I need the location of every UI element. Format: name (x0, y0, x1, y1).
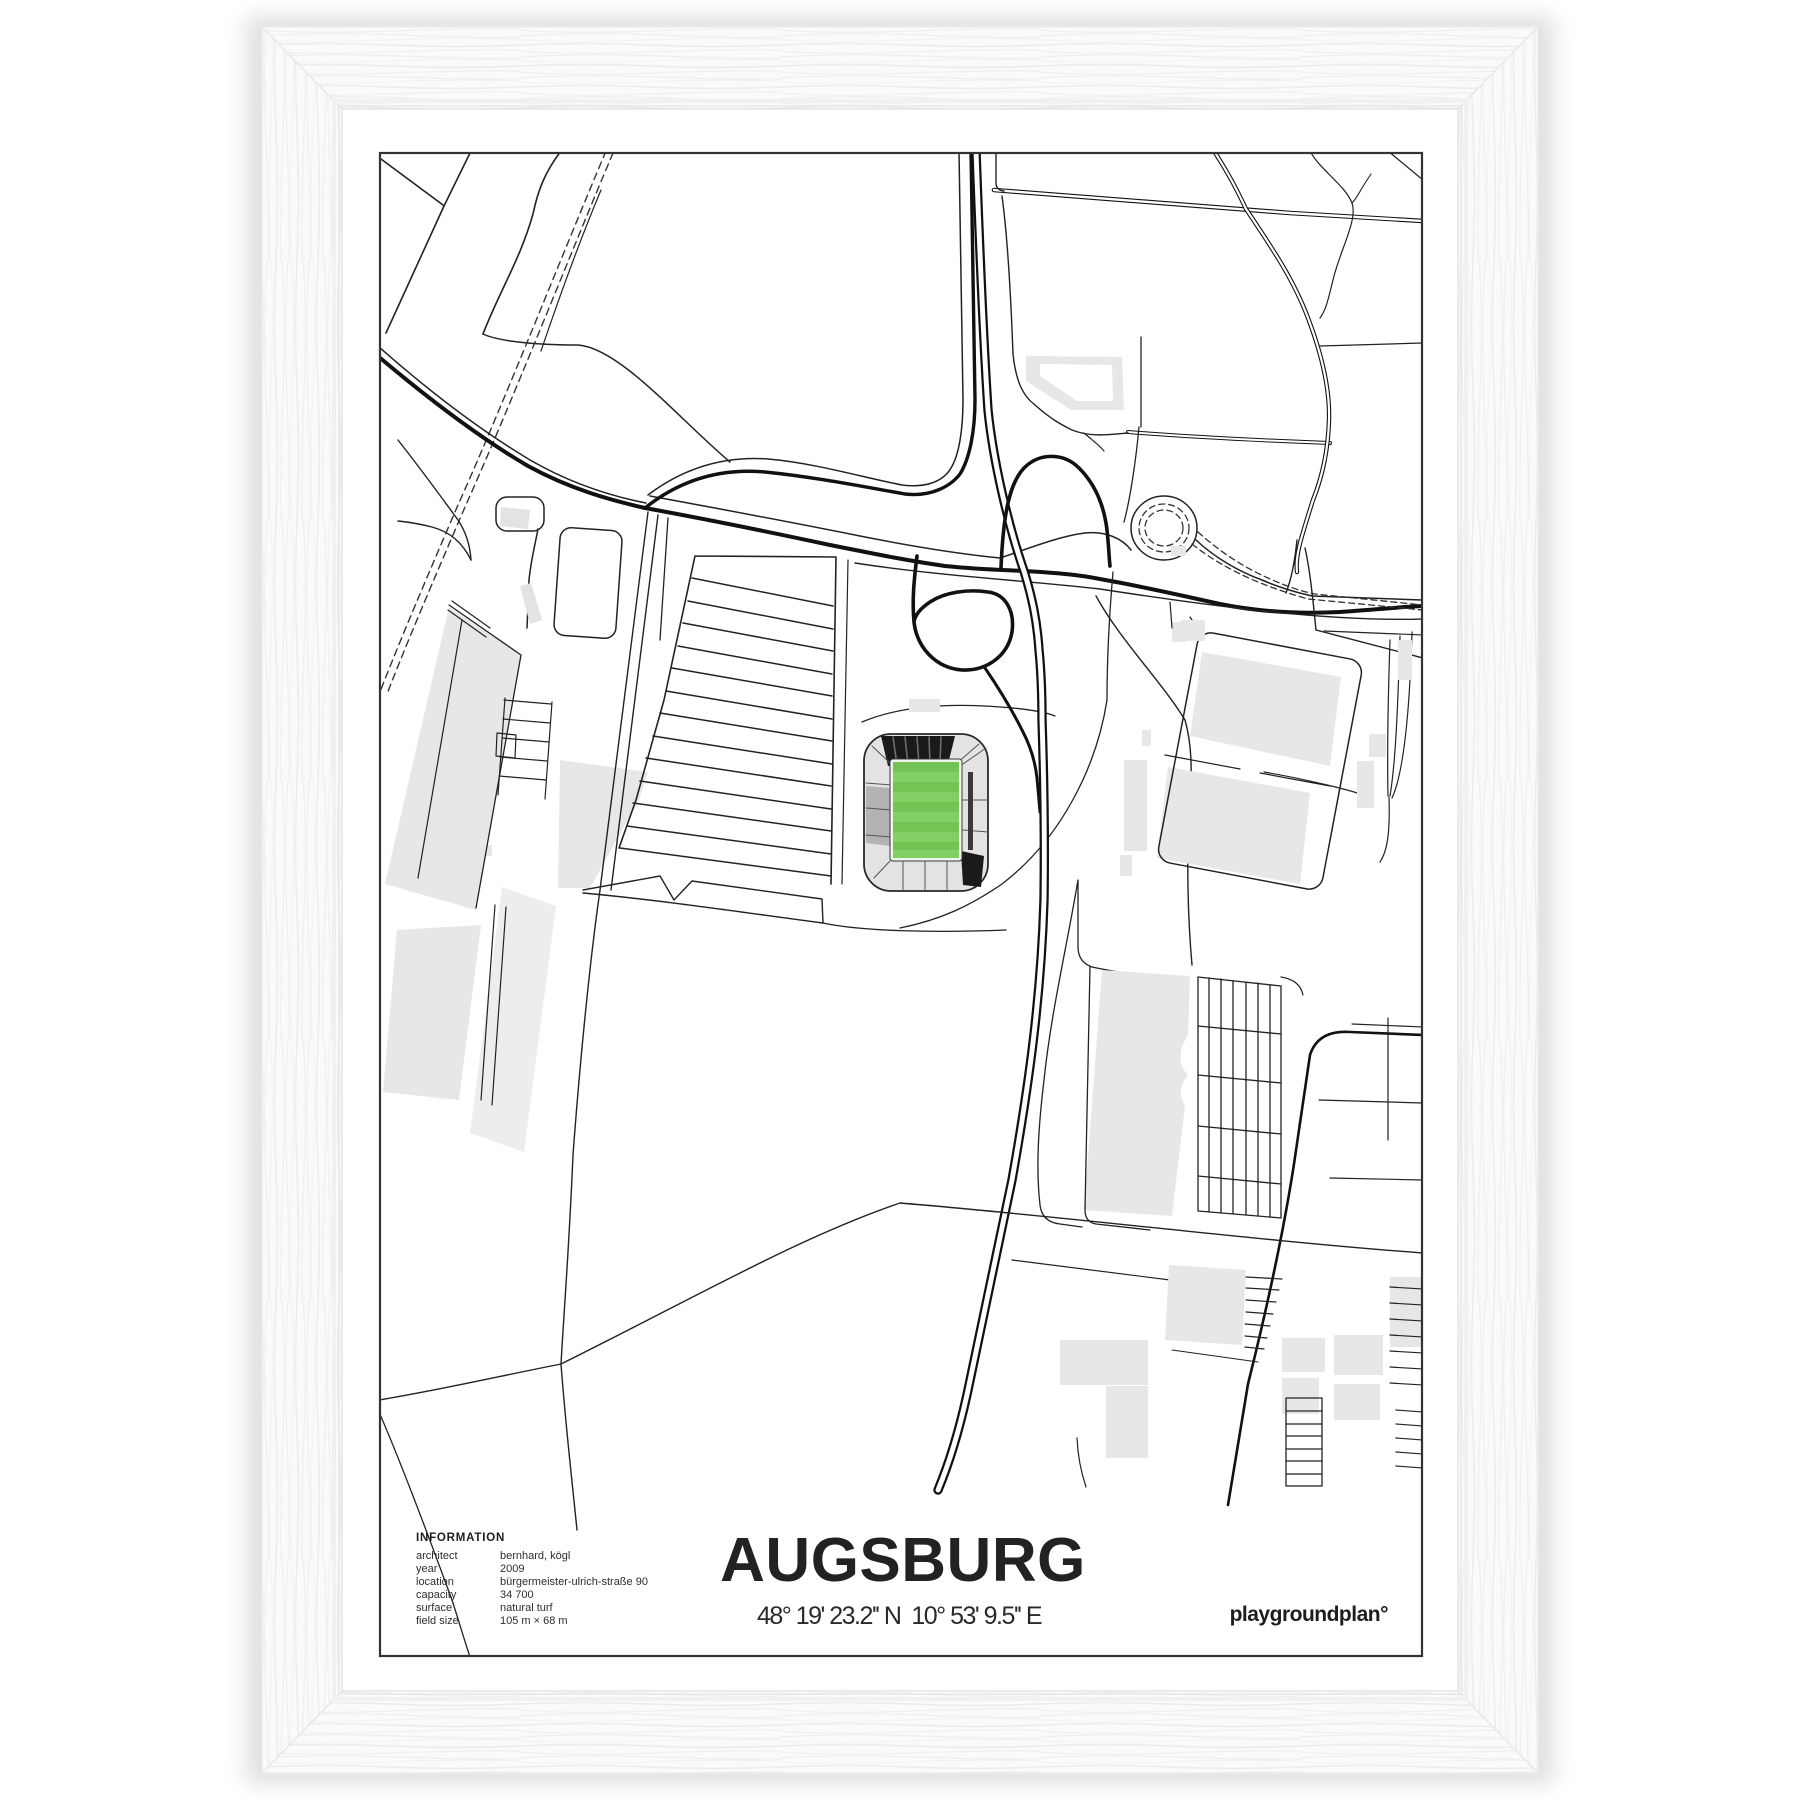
svg-text:34 700: 34 700 (500, 1589, 534, 1601)
svg-text:playgroundplan°: playgroundplan° (1230, 1603, 1389, 1626)
svg-text:location: location (416, 1576, 454, 1588)
svg-text:field size: field size (416, 1615, 459, 1627)
svg-text:natural turf: natural turf (500, 1602, 554, 1614)
svg-text:48° 19' 23.2'' N 10° 53' 9.5': 48° 19' 23.2'' N 10° 53' 9.5'' E (757, 1602, 1042, 1630)
svg-text:INFORMATION: INFORMATION (416, 1532, 505, 1544)
svg-text:year: year (416, 1563, 438, 1575)
svg-text:105 m × 68 m: 105 m × 68 m (500, 1615, 568, 1627)
svg-text:capacity: capacity (416, 1589, 457, 1601)
svg-text:surface: surface (416, 1602, 452, 1614)
svg-text:bernhard, kögl: bernhard, kögl (500, 1550, 570, 1562)
svg-text:2009: 2009 (500, 1563, 524, 1575)
svg-text:bürgermeister-ulrich-straße 90: bürgermeister-ulrich-straße 90 (500, 1576, 648, 1588)
svg-text:architect: architect (416, 1550, 458, 1562)
svg-text:AUGSBURG: AUGSBURG (720, 1526, 1086, 1595)
